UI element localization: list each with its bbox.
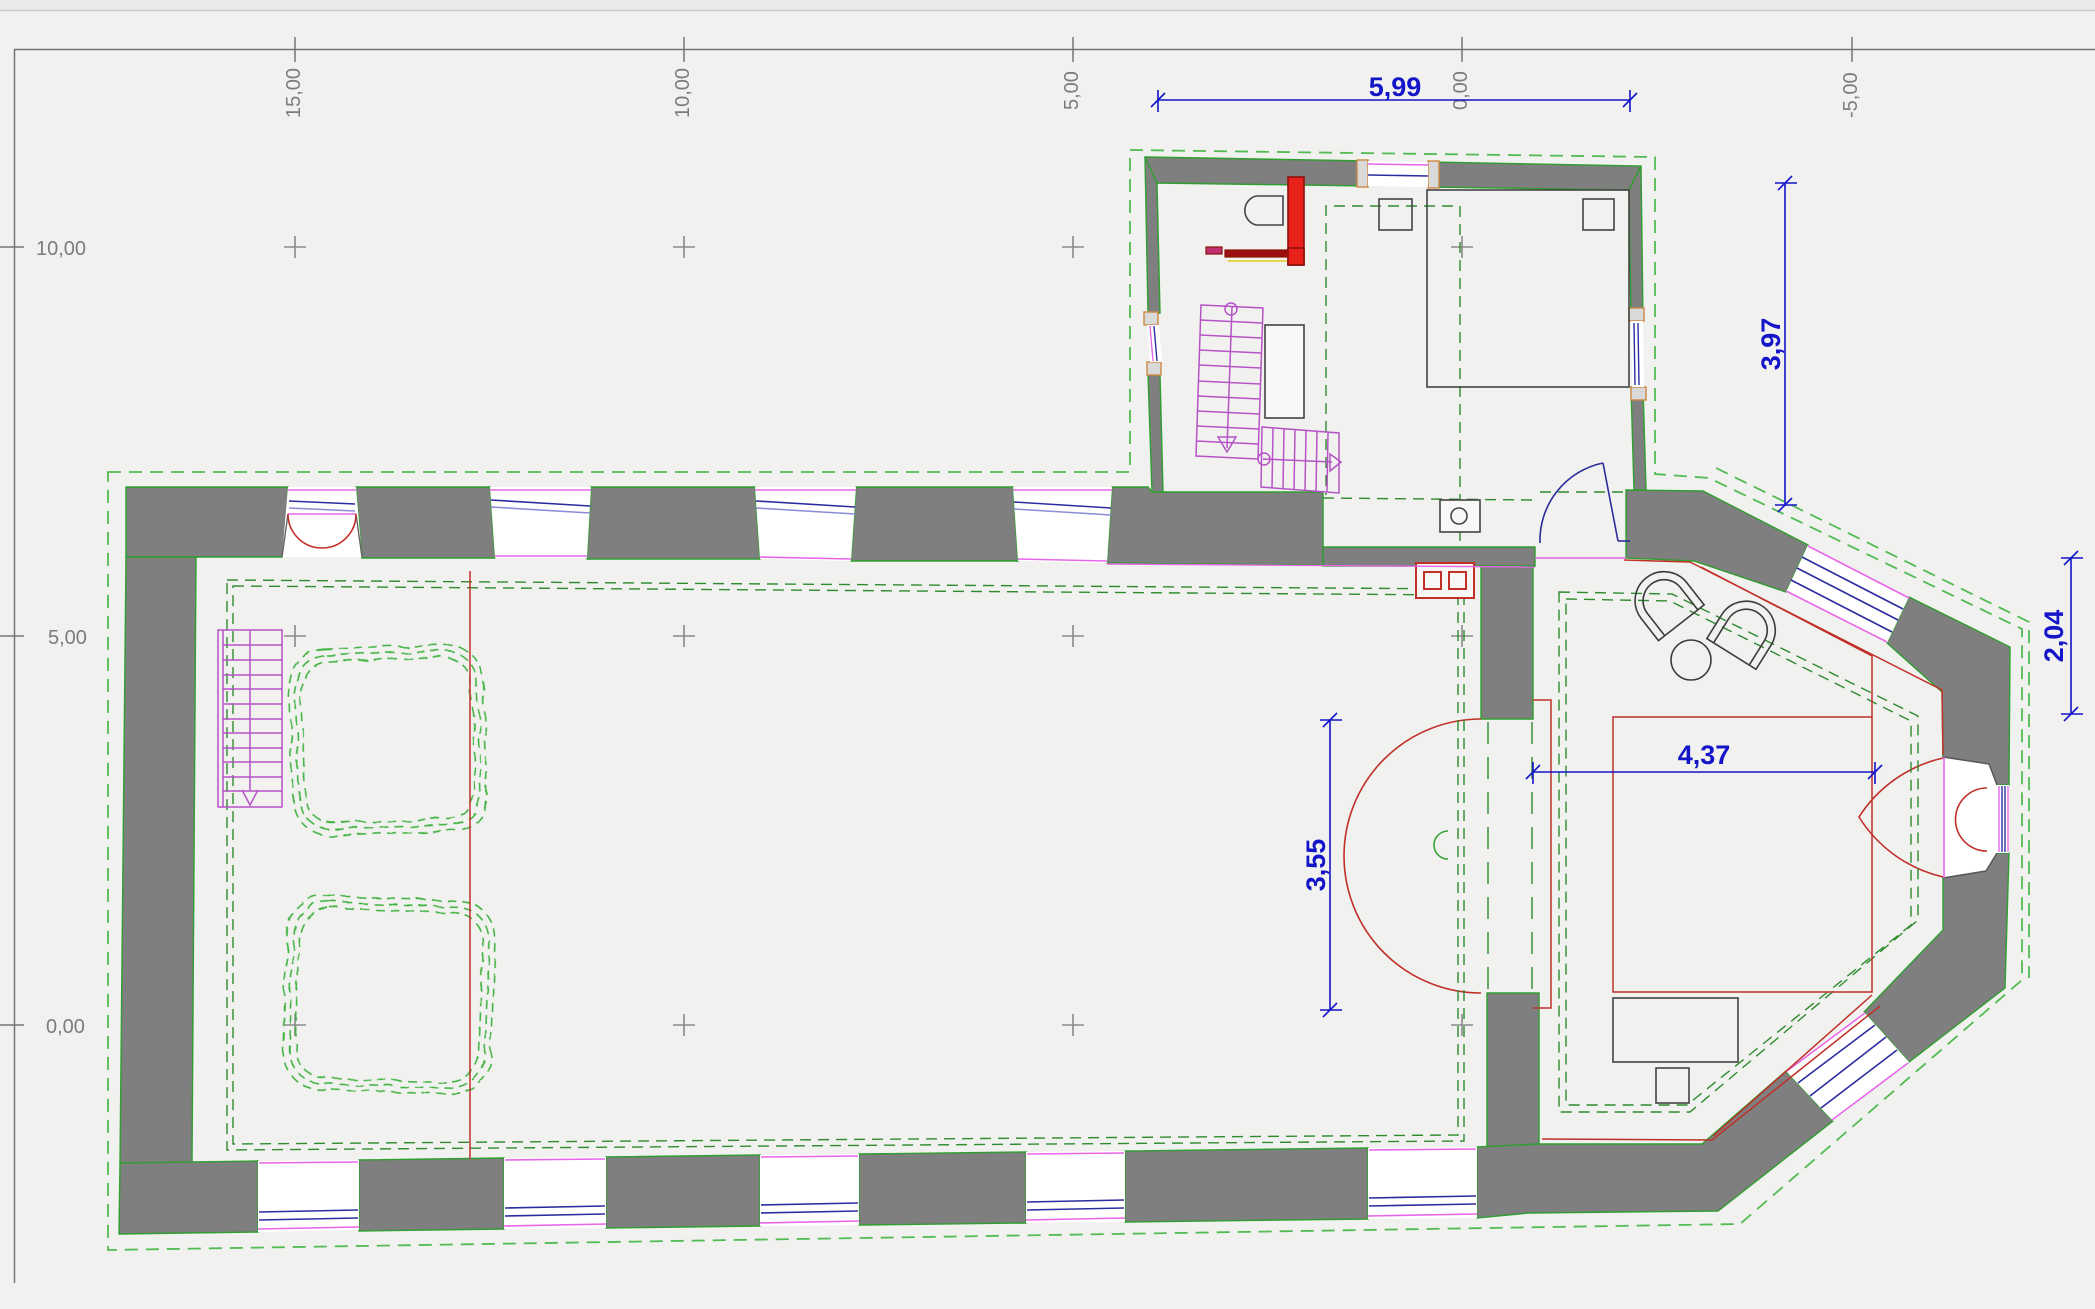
svg-text:0,00: 0,00 [1450, 71, 1472, 110]
svg-text:10,00: 10,00 [672, 68, 694, 118]
svg-text:3,97: 3,97 [1756, 318, 1786, 371]
svg-text:15,00: 15,00 [283, 68, 305, 118]
svg-text:5,99: 5,99 [1369, 72, 1422, 102]
svg-text:5,00: 5,00 [1061, 71, 1083, 110]
svg-text:-5,00: -5,00 [1840, 72, 1862, 118]
svg-text:4,37: 4,37 [1678, 740, 1731, 770]
svg-text:5,00: 5,00 [48, 627, 87, 649]
svg-text:3,55: 3,55 [1301, 839, 1331, 892]
svg-text:2,04: 2,04 [2039, 610, 2069, 663]
svg-text:0,00: 0,00 [46, 1016, 85, 1038]
svg-text:10,00: 10,00 [36, 238, 86, 260]
